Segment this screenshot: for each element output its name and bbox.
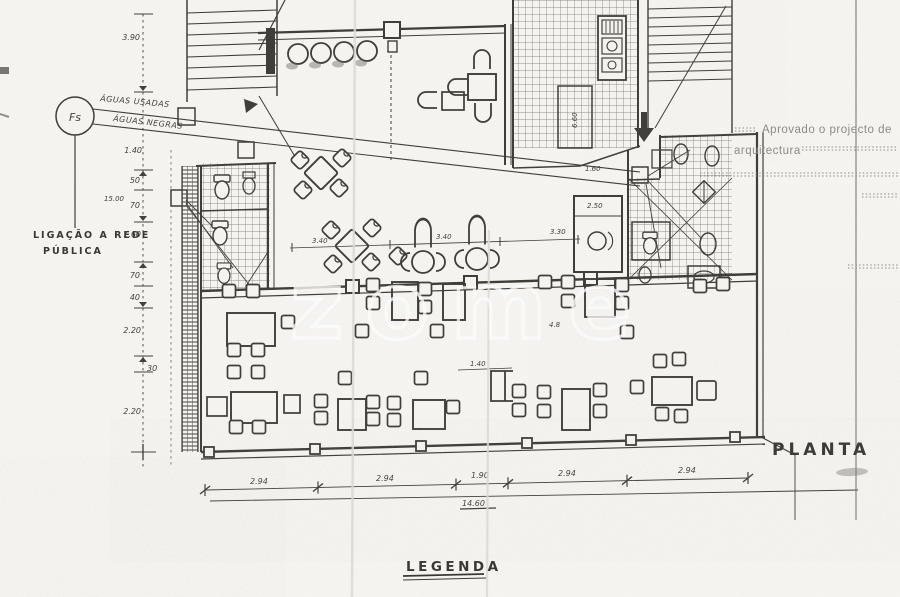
toilet-icon: [214, 175, 230, 199]
interior-dim-3: 3.30: [550, 228, 566, 236]
left-dim-7: 2.20: [123, 326, 141, 335]
stamp-line-1: Aprovado o projecto de: [762, 124, 892, 136]
toilet-icon: [212, 221, 228, 245]
plan-drawing: Fs ÁGUAS USADAS ÁGUAS NEGRAS LIGAÇÃO A R…: [0, 0, 900, 597]
column: [384, 22, 400, 38]
left-dim-1: 1.40: [124, 146, 142, 155]
scanned-floor-plan: Fs ÁGUAS USADAS ÁGUAS NEGRAS LIGAÇÃO A R…: [0, 0, 900, 597]
left-dim-2: 50: [130, 176, 140, 185]
interior-dim-6-60: 6.60: [571, 112, 579, 128]
left-dim-5: 70: [130, 271, 140, 280]
chair-icon: [469, 216, 485, 245]
toilet-icon: [643, 232, 657, 254]
left-dim-total: 15.00: [104, 195, 125, 203]
bottom-dim-4: 2.94: [678, 466, 696, 475]
edge-mark: [0, 67, 9, 74]
watermark-text: zome: [290, 253, 653, 360]
bottom-dim-3: 2.94: [558, 469, 576, 478]
chair-icon: [475, 103, 491, 122]
left-dim-8: 30: [147, 364, 157, 373]
column: [310, 444, 320, 454]
kitchen-area: 6.60: [513, 0, 640, 168]
kitchen-sink-unit: [598, 16, 626, 80]
wc-left: [200, 163, 274, 290]
bottom-dim-1: 2.94: [376, 474, 394, 483]
column: [416, 441, 426, 451]
left-dim-3: 70: [130, 201, 140, 210]
toilet-icon: [217, 263, 231, 283]
column: [730, 432, 740, 442]
legend-title: LEGENDA: [406, 559, 502, 575]
plan-title: PLANTA: [772, 440, 870, 460]
left-dim-4: 1.60: [123, 230, 141, 239]
chair-icon: [418, 92, 437, 108]
interior-dim-5: 2.50: [587, 202, 603, 210]
interior-dim-1: 3.40: [312, 237, 328, 245]
bottom-dim-2: 1.90: [471, 471, 489, 480]
bottom-dim-total: 14.60: [462, 499, 485, 508]
bottom-dim-0: 2.94: [250, 477, 268, 486]
public-network-label-line2: PÚBLICA: [43, 245, 103, 257]
column: [626, 435, 636, 445]
chair-icon: [474, 50, 490, 69]
chair-icon: [415, 219, 431, 248]
interior-dim-6: 1.40: [470, 360, 486, 368]
interior-dim-4: 1.60: [585, 165, 601, 173]
fs-node-label: Fs: [69, 111, 81, 124]
left-dim-0: 3.90: [122, 33, 140, 42]
stamp-line-2: arquitectura: [734, 145, 801, 157]
left-wall-poche: [182, 166, 198, 452]
interior-dim-2: 3.40: [436, 233, 452, 241]
column: [522, 438, 532, 448]
left-dim-9: 2.20: [123, 407, 141, 416]
left-dim-6: 40: [130, 293, 140, 302]
column: [204, 447, 214, 457]
